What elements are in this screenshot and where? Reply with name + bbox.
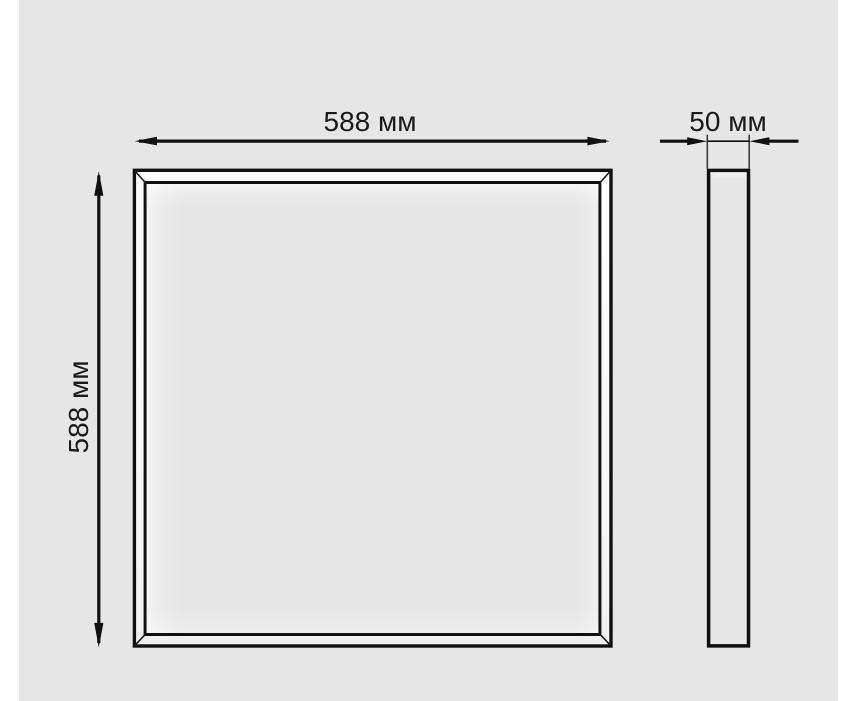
svg-text:50 мм: 50 мм [689, 106, 766, 137]
svg-text:588 мм: 588 мм [63, 361, 94, 454]
svg-text:588 мм: 588 мм [324, 106, 417, 137]
